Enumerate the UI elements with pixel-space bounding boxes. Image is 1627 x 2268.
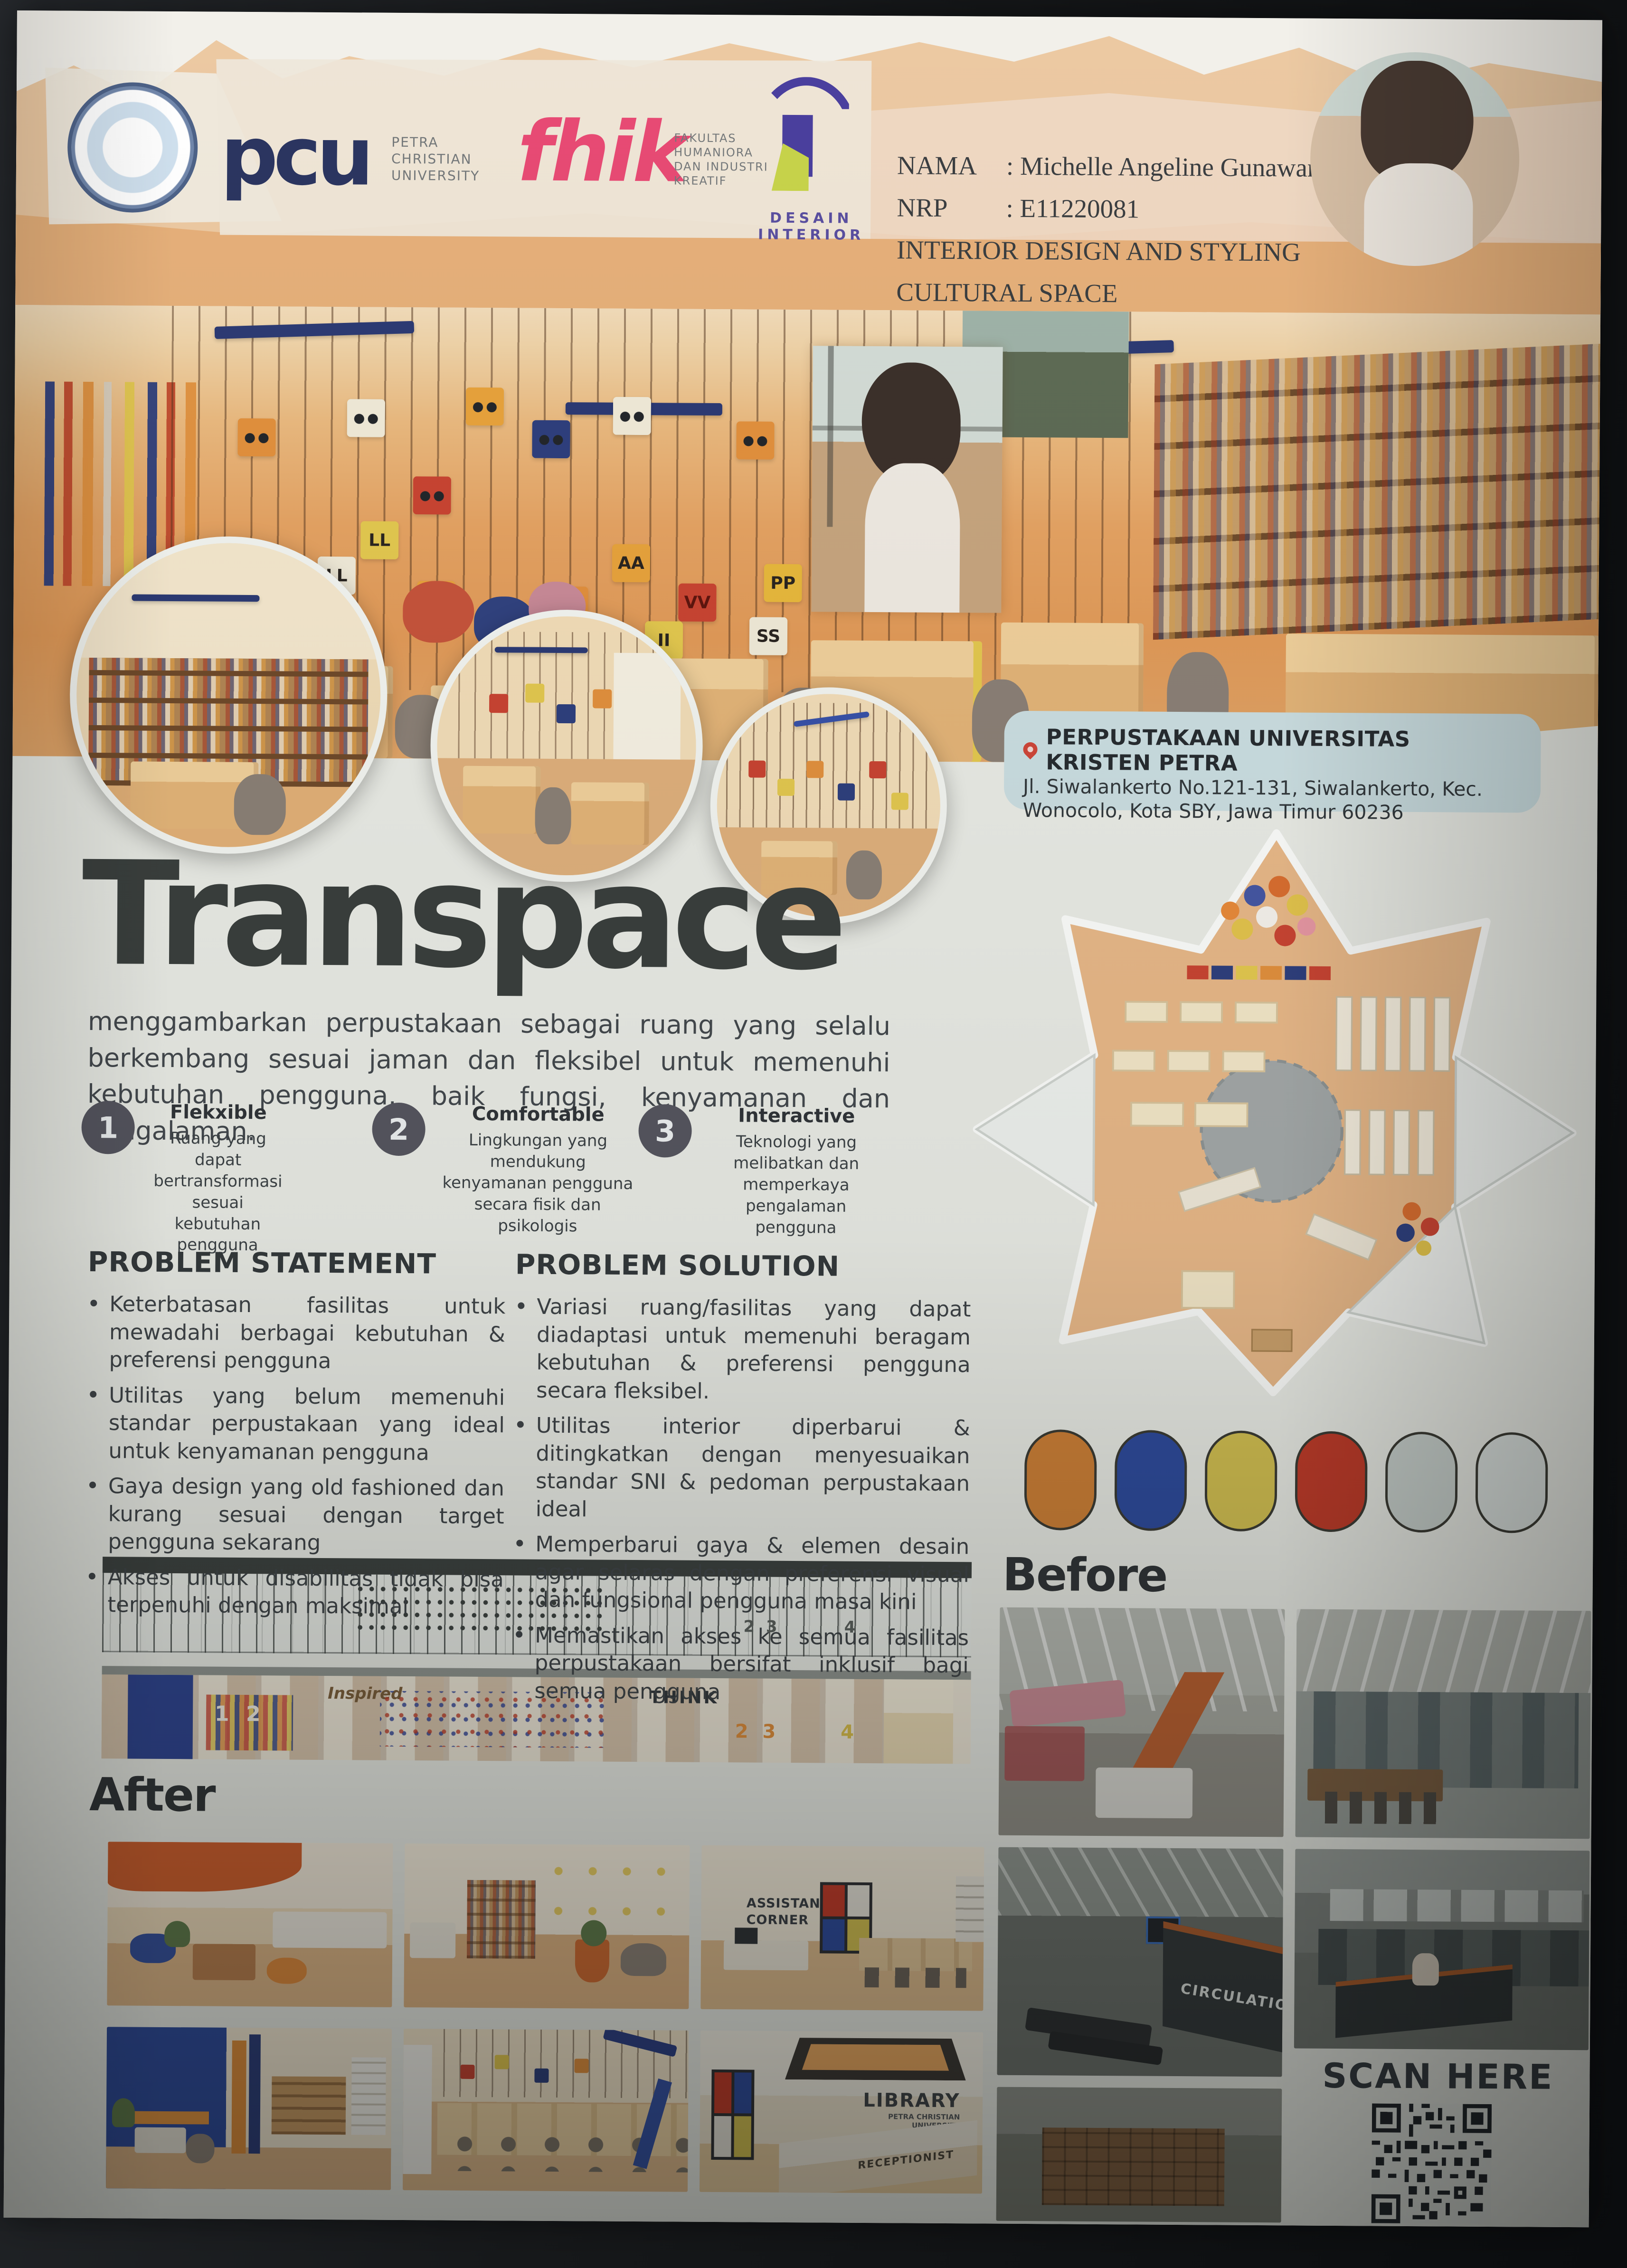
fhik-line: HUMANIORA <box>674 145 768 160</box>
problem-statement-item: Utilitas yang belum memenuhi standar per… <box>86 1381 505 1467</box>
mondrian-cell <box>847 1885 869 1917</box>
bullet-text: Keterbatasan fasilitas untuk mewadahi be… <box>109 1290 505 1376</box>
mini-block <box>460 2065 474 2079</box>
problem-solution-section: PROBLEM SOLUTION Variasi ruang/fasilitas… <box>512 1248 971 1715</box>
feature-number-badge: 1 <box>81 1101 135 1154</box>
white-column <box>403 2045 432 2174</box>
id-row-program: INTERIOR DESIGN AND STYLING <box>897 229 1320 274</box>
table <box>134 2127 186 2153</box>
fhik-line: DAN INDUSTRI <box>674 159 768 174</box>
pcu-line: UNIVERSITY <box>391 167 480 184</box>
library-sign: LIBRARY <box>863 2089 960 2112</box>
nama-label: NAMA <box>897 144 1007 187</box>
bullet-text: Utilitas yang belum memenuhi standar per… <box>108 1381 505 1467</box>
after-photo-study-carrels <box>403 2029 689 2192</box>
bullet-dot <box>90 1300 97 1306</box>
bullet-text: Memperbarui gaya & elemen desain agar se… <box>535 1531 969 1616</box>
orange-stripe <box>123 2111 209 2124</box>
bullet-dot <box>518 1302 524 1309</box>
feature-title: Flekxible <box>147 1101 290 1124</box>
hanging-block-eyes <box>347 399 385 437</box>
chairs-row <box>1325 1792 1443 1824</box>
desain-interior-text: DESAIN INTERIOR <box>754 209 868 243</box>
bullet-text: Utilitas interior diperbarui & ditingkat… <box>536 1412 970 1526</box>
plant <box>164 1921 190 1947</box>
pendant-light <box>132 594 260 602</box>
seated-woman-photo <box>811 346 1003 613</box>
pcu-line: CHRISTIAN <box>391 151 480 168</box>
plant <box>581 1920 606 1947</box>
mural-dots <box>541 1851 690 1937</box>
long-table <box>859 1938 972 1971</box>
inset-block <box>593 689 612 708</box>
inset-block <box>525 683 544 702</box>
mondrian-cell <box>714 2116 731 2157</box>
location-pin-icon <box>1020 739 1040 759</box>
desain-line: INTERIOR <box>754 226 868 243</box>
hanging-block-eyes <box>413 476 451 514</box>
before-photo-event-hall <box>999 1607 1285 1837</box>
mondrian-cell <box>734 2072 752 2113</box>
hanging-block-letter: VV <box>678 584 716 622</box>
pcu-logo-text: PETRA CHRISTIAN UNIVERSITY <box>391 134 480 184</box>
bullet-text: Akses untuk disabilitas tidak bisa terpe… <box>107 1563 504 1621</box>
chairs-row <box>865 1967 966 1988</box>
mini-block <box>574 2059 588 2073</box>
bullet-text: Gaya design yang old fashioned dan kuran… <box>108 1472 504 1558</box>
palette-swatch-gray <box>1385 1432 1457 1533</box>
university-seal-icon <box>67 82 198 213</box>
topic-value: CULTURAL SPACE <box>896 271 1118 315</box>
red-booths <box>1004 1726 1085 1781</box>
problem-solution-item: Memperbarui gaya & elemen desain agar se… <box>513 1530 969 1616</box>
ceiling-beams <box>998 1847 1284 1918</box>
problem-statement-heading: PROBLEM STATEMENT <box>88 1246 506 1280</box>
avatar-blouse <box>1364 163 1473 266</box>
blue-panel <box>127 1674 193 1759</box>
desain-line: DESAIN <box>754 209 868 227</box>
window-frame <box>827 346 833 527</box>
orange-pouf <box>267 1957 307 1984</box>
pendant-light <box>495 647 588 653</box>
hanging-block-eyes <box>237 418 275 456</box>
after-photo-reference-room <box>404 1843 690 2009</box>
mondrian-cell <box>714 2072 732 2113</box>
palette-swatch-blue <box>1114 1430 1187 1531</box>
student-photo <box>1310 52 1520 267</box>
bookshelves <box>1153 344 1601 640</box>
fhik-logo: fhik <box>517 104 685 201</box>
fhik-logo-text: FAKULTAS HUMANIORA DAN INDUSTRI KREATIF <box>674 131 769 188</box>
person <box>1412 1953 1439 1985</box>
hanging-block-eyes <box>613 397 651 435</box>
problem-statement-item: Gaya design yang old fashioned dan kuran… <box>86 1472 504 1558</box>
nrp-label: NRP <box>897 186 1006 229</box>
elevation-numbers: 2 3 <box>735 1721 780 1743</box>
feature-title: Interactive <box>704 1105 889 1127</box>
location-address-line2: Wonocolo, Kota SBY, Jawa Timur 60236 <box>1023 798 1522 825</box>
locker-numbers: 1 2 <box>215 1702 265 1727</box>
location-title: PERPUSTAKAAN UNIVERSITAS KRISTEN PETRA <box>1046 724 1522 777</box>
pcu-line: PETRA <box>391 134 480 151</box>
nama-value: : Michelle Angeline Gunawan <box>1006 145 1321 189</box>
mondrian-cell <box>823 1885 844 1916</box>
problem-statement-item: Akses untuk disabilitas tidak bisa terpe… <box>85 1563 504 1621</box>
navy-frame <box>248 2034 261 2154</box>
bullet-dot <box>516 1631 522 1637</box>
bullet-dot <box>89 1482 96 1488</box>
after-photo-reception: LIBRARY PETRA CHRISTIAN UNIVERSITY RECEP… <box>700 2031 983 2194</box>
wood-shelves <box>272 2076 346 2135</box>
palette-swatch-yellow <box>1204 1430 1277 1531</box>
nrp-value: : E11220081 <box>1006 187 1139 230</box>
before-heading: Before <box>1003 1548 1167 1602</box>
bullet-dot <box>517 1421 524 1427</box>
poster: pcu PETRA CHRISTIAN UNIVERSITY fhik FAKU… <box>4 10 1602 2227</box>
inset-circle-bookshelves <box>69 536 388 855</box>
glass-partition <box>955 1876 984 1942</box>
wood-table <box>193 1944 255 1980</box>
inset-block <box>806 761 823 778</box>
scan-here-heading: SCAN HERE <box>1322 2056 1553 2097</box>
feature-number-badge: 2 <box>372 1103 426 1156</box>
poster-title: Transpace <box>81 847 841 988</box>
id-row-nrp: NRP : E11220081 <box>897 186 1320 231</box>
bullet-text: Variasi ruang/fasilitas yang dapat diada… <box>536 1293 971 1407</box>
white-counter <box>273 1911 387 1948</box>
bullet-dot <box>89 1572 95 1579</box>
hanging-block-letter: SS <box>749 617 787 655</box>
palette-swatch-red <box>1295 1431 1367 1532</box>
location-title-row: PERPUSTAKAAN UNIVERSITAS KRISTEN PETRA <box>1023 724 1522 777</box>
palette-swatch-white <box>1475 1432 1548 1533</box>
qr-code <box>1372 2104 1492 2226</box>
inset-table <box>463 766 540 834</box>
location-card: PERPUSTAKAAN UNIVERSITAS KRISTEN PETRA J… <box>1004 711 1541 813</box>
before-photo-stacks <box>1296 1609 1591 1839</box>
inset-chair <box>234 774 286 835</box>
color-palette <box>1024 1429 1548 1533</box>
bullet-text: Memastikan akses ke semua fasilitas perp… <box>534 1621 969 1707</box>
before-photo-circulation: CIRCULATION <box>997 1847 1283 2077</box>
clerestory-windows <box>1330 1889 1584 1922</box>
problem-statement-item: Keterbatasan fasilitas untuk mewadahi be… <box>87 1290 505 1376</box>
problem-solution-item: Utilitas interior diperbarui & ditingkat… <box>514 1411 970 1525</box>
fhik-line: FAKULTAS <box>674 131 768 145</box>
hanging-block-eyes <box>532 420 570 458</box>
program-value: INTERIOR DESIGN AND STYLING <box>897 229 1301 274</box>
bullet-dot <box>90 1390 96 1397</box>
inset-block <box>489 694 508 713</box>
inset-block <box>891 793 908 810</box>
problem-statement-section: PROBLEM STATEMENT Keterbatasan fasilitas… <box>85 1246 506 1629</box>
hanging-block-eyes <box>466 387 504 425</box>
bookshelf <box>467 1880 536 1959</box>
mini-block <box>495 2055 509 2070</box>
white-desk <box>410 1922 455 1958</box>
inset-block <box>557 704 576 723</box>
fhik-line: KREATIF <box>674 173 768 188</box>
card-catalog-cabinet <box>1042 2127 1225 2206</box>
plant <box>112 2098 135 2127</box>
mondrian-panel <box>711 2070 754 2160</box>
after-heading: After <box>89 1768 215 1822</box>
problem-solution-heading: PROBLEM SOLUTION <box>515 1248 971 1283</box>
id-row-topic: CULTURAL SPACE <box>896 271 1320 316</box>
hanging-block-eyes <box>736 421 774 459</box>
palette-swatch-orange <box>1024 1429 1097 1531</box>
feature-flekxible: 1 Flekxible Ruang yang dapat bertransfor… <box>81 1101 372 1257</box>
student-id-block: NAMA : Michelle Angeline Gunawan NRP : E… <box>896 144 1321 316</box>
work-desk <box>723 1940 808 1970</box>
photo-of-poster: pcu PETRA CHRISTIAN UNIVERSITY fhik FAKU… <box>0 0 1627 2268</box>
inset-mural-panel <box>613 653 681 767</box>
feature-interactive: 3 Interactive Teknologi yang melibatkan … <box>638 1104 889 1260</box>
book-spines <box>1153 344 1601 640</box>
assistant-corner-label: ASSISTANT CORNER <box>747 1895 803 1928</box>
after-photo-blue-nook <box>106 2027 392 2190</box>
white-table <box>1096 1767 1193 1818</box>
pcu-logo: pcu <box>220 109 370 204</box>
mondrian-cell <box>734 2116 751 2157</box>
inset-block <box>838 784 855 801</box>
problem-solution-item: Memastikan akses ke semua fasilitas perp… <box>512 1621 969 1707</box>
after-photo-assistant-corner: ASSISTANT CORNER <box>700 1845 984 2011</box>
before-photo-card-catalog <box>996 2087 1282 2223</box>
feature-title: Comfortable <box>438 1103 639 1126</box>
before-photo-reference-desk <box>1294 1849 1590 2051</box>
mondrian-cell <box>823 1919 844 1950</box>
floor-plan-drawing <box>951 823 1598 1402</box>
inset-block <box>869 761 886 778</box>
desain-interior-logo: DESAIN INTERIOR <box>755 76 879 137</box>
woman-dress <box>864 463 960 613</box>
features-row: 1 Flekxible Ruang yang dapat bertransfor… <box>81 1101 889 1260</box>
after-photo-lounge <box>107 1842 393 2007</box>
monitor <box>735 1928 758 1944</box>
chair <box>621 1943 666 1976</box>
feature-comfortable: 2 Comfortable Lingkungan yang mendukung … <box>371 1103 639 1259</box>
white-lattice <box>351 2058 386 2136</box>
bullet-dot <box>516 1540 523 1546</box>
inset-block <box>777 778 795 795</box>
id-row-nama: NAMA : Michelle Angeline Gunawan <box>897 144 1321 189</box>
chair <box>186 2134 214 2164</box>
orange-frame <box>231 2041 246 2154</box>
feature-desc: Ruang yang dapat bertransformasi sesuai … <box>146 1128 290 1257</box>
ceiling-beams <box>1296 1609 1591 1693</box>
feature-number-badge: 3 <box>638 1104 692 1158</box>
floor-plan <box>951 823 1598 1402</box>
qr-code-graphic <box>1372 2104 1492 2224</box>
inset-chair <box>846 850 882 900</box>
problem-solution-item: Variasi ruang/fasilitas yang dapat diada… <box>514 1293 971 1407</box>
location-address-line1: Jl. Siwalankerto No.121-131, Siwalankert… <box>1023 775 1522 801</box>
feature-desc: Lingkungan yang mendukung kenyamanan pen… <box>437 1129 638 1237</box>
hanging-block-letter: PP <box>764 564 802 602</box>
canopy-light <box>802 2044 949 2070</box>
elevation-numbers: 4 <box>841 1721 858 1743</box>
inset-block <box>748 760 766 777</box>
orange-ceiling <box>108 1842 302 1892</box>
mini-block <box>534 2068 549 2082</box>
feature-desc: Teknologi yang melibatkan dan memperkaya… <box>703 1131 889 1239</box>
hanging-block-letter: AA <box>612 544 650 582</box>
